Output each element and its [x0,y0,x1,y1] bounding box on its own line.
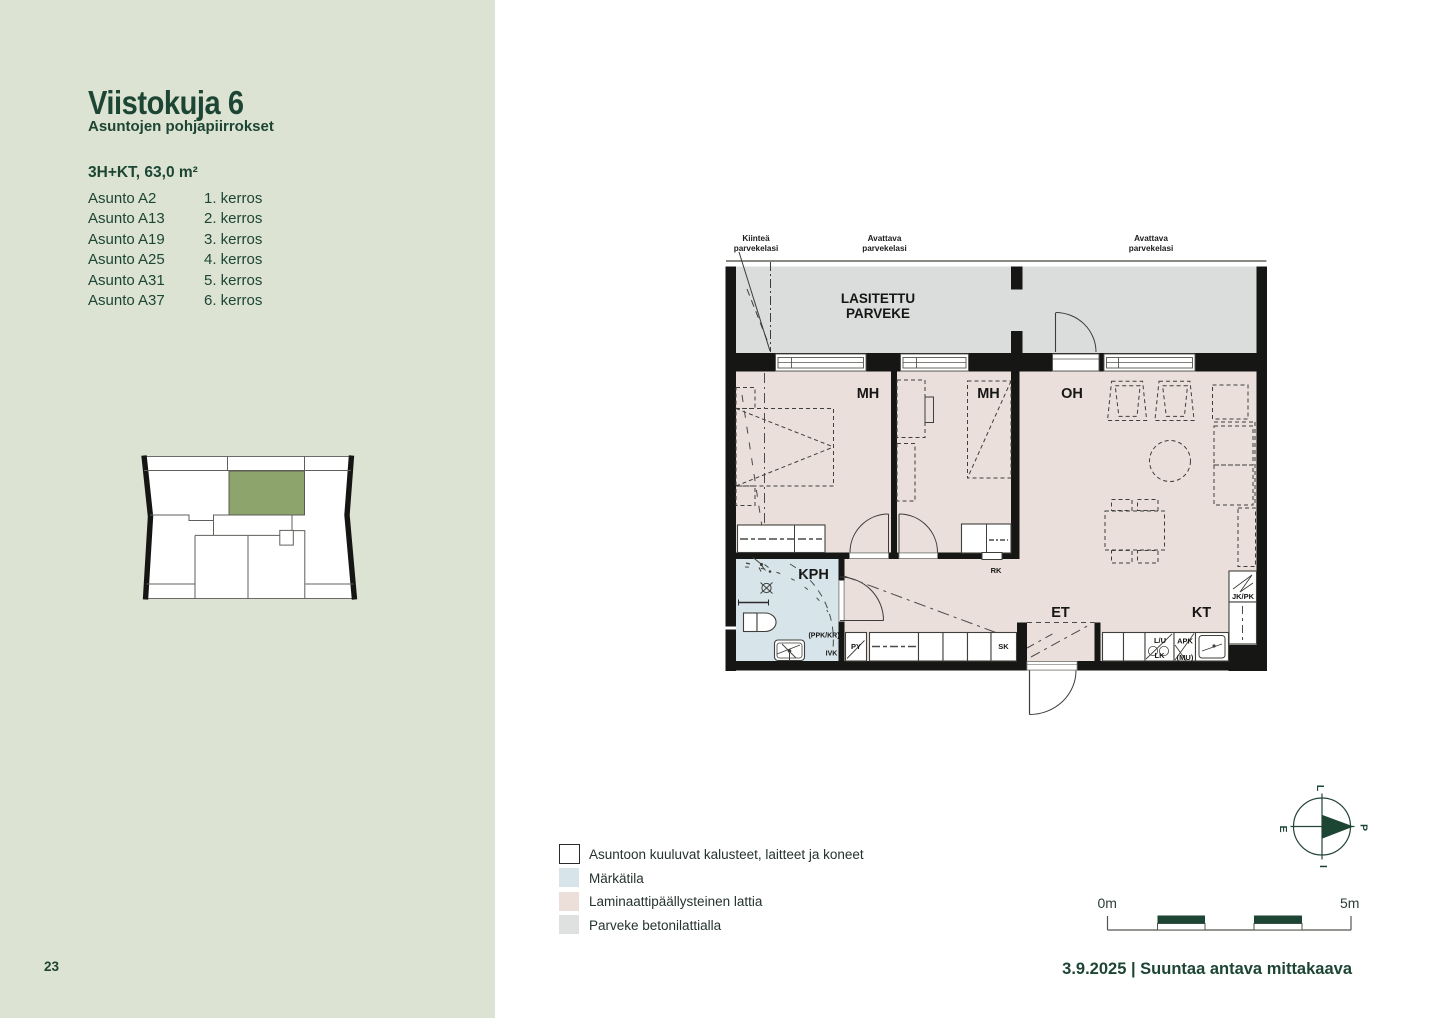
svg-text:L/U: L/U [1154,636,1166,645]
svg-text:I: I [1317,865,1329,868]
svg-text:P: P [1358,824,1370,831]
svg-text:IVK: IVK [826,651,838,658]
svg-text:SK: SK [998,642,1009,651]
svg-text:0m: 0m [1098,895,1117,911]
svg-text:RK: RK [991,566,1002,575]
svg-text:E: E [1277,825,1289,832]
svg-text:(MU): (MU) [1177,653,1194,662]
svg-text:PY: PY [851,642,861,651]
svg-text:5m: 5m [1340,895,1359,911]
svg-text:L: L [1314,785,1326,792]
svg-text:LK: LK [1155,651,1166,660]
svg-text:JK/PK: JK/PK [1232,592,1255,601]
svg-text:(PPK/KR): (PPK/KR) [808,633,839,640]
svg-text:APK: APK [1177,637,1193,646]
